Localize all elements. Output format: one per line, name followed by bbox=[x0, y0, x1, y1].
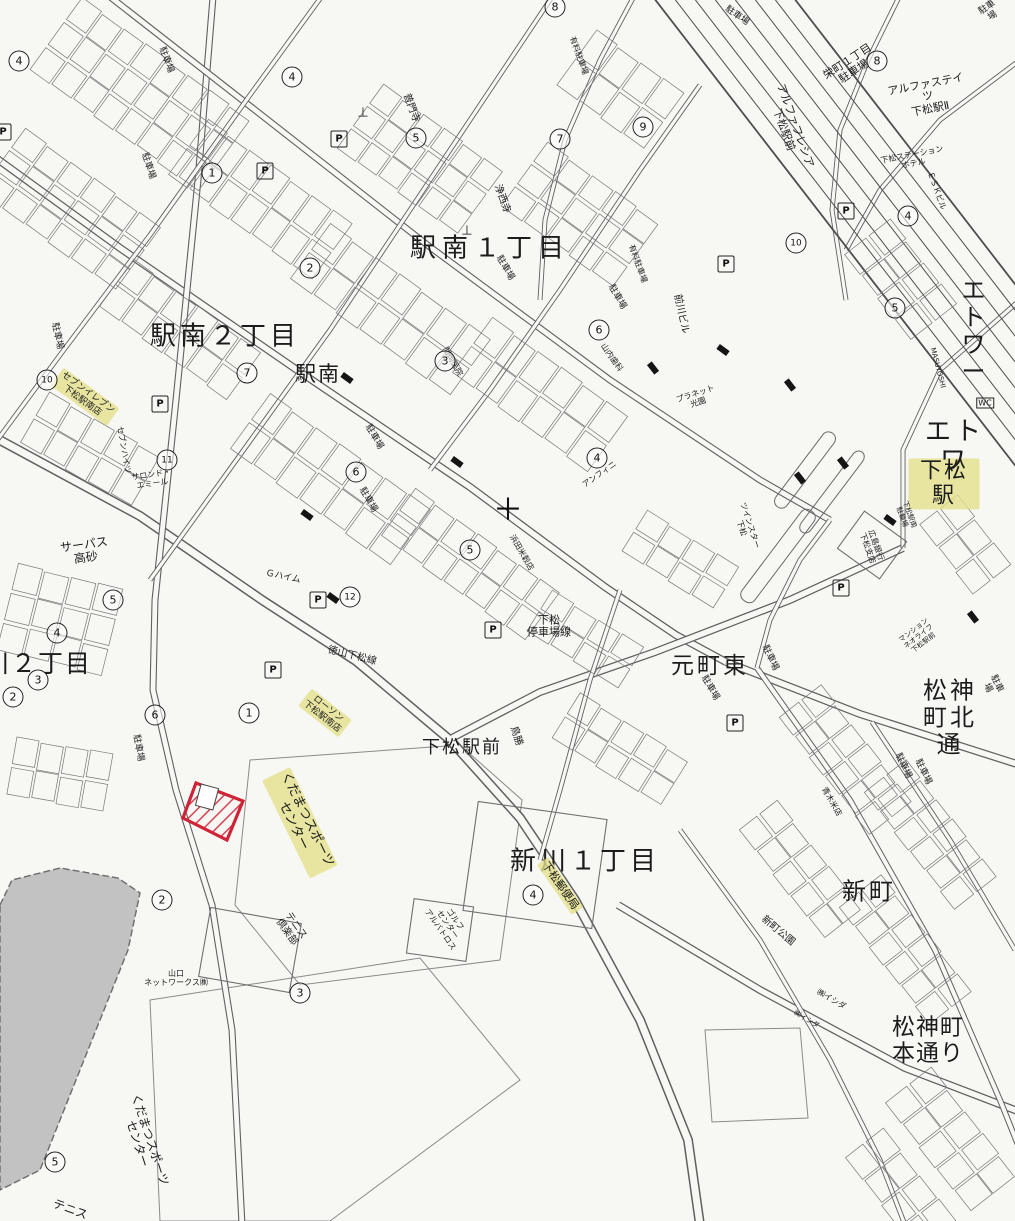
torikatsu: 鳥勝 bbox=[508, 725, 525, 747]
station-south-bicycle-parking: 下松駅南 駐輪場 bbox=[893, 500, 917, 532]
road-teishajo-line: 下松 停車場線 bbox=[527, 615, 571, 640]
circled-number-marker: 4 bbox=[9, 51, 30, 72]
circled-number-marker: 2 bbox=[300, 258, 321, 279]
parking-area-label: 駐車場 bbox=[49, 322, 64, 351]
parking-area-label: 駐車場 bbox=[723, 4, 751, 28]
g-heim: Ｇハイム bbox=[265, 568, 302, 585]
map-canvas: 駅南１丁目駅南２丁目駅南下松駅エトワーエトワ元町東松神町北通新川１丁目新町松神町… bbox=[0, 0, 1015, 1221]
kudamatsu-station-hotel: 下松ステーション ホテル bbox=[880, 145, 946, 175]
road-tokuyama-kudamatsu-line: 徳山下松線 bbox=[326, 645, 377, 668]
parking-symbol: P bbox=[310, 592, 327, 609]
planet-koen: プラネット 光園 bbox=[675, 384, 719, 413]
circled-number-marker: 4 bbox=[47, 623, 68, 644]
circled-number-marker: 6 bbox=[145, 705, 166, 726]
circled-number-marker: 4 bbox=[523, 885, 544, 906]
parking-area-label: 駐車場 bbox=[699, 674, 721, 702]
tennis: テニス bbox=[51, 1198, 89, 1221]
area-ekiminami-2chome: 駅南２丁目 bbox=[150, 322, 300, 351]
parking-symbol: P bbox=[833, 580, 850, 597]
circled-number-marker: 7 bbox=[237, 363, 258, 384]
circled-number-marker: 5 bbox=[885, 298, 906, 319]
area-kudamatsu-ekimae: 下松駅前 bbox=[422, 738, 502, 758]
parking-area-label: 駐車場 bbox=[978, 671, 1006, 700]
map-labels-layer: 駅南１丁目駅南２丁目駅南下松駅エトワーエトワ元町東松神町北通新川１丁目新町松神町… bbox=[0, 0, 1015, 1221]
parking-symbol: P bbox=[331, 131, 348, 148]
circled-number-marker: 3 bbox=[435, 351, 456, 372]
circled-number-marker: 7 bbox=[550, 129, 571, 150]
area-ekiminami: 駅南 bbox=[295, 363, 341, 387]
hiroshima-bank-kudamatsu: 広島銀行 下松支店 bbox=[857, 529, 885, 565]
parking-area-label: 駐車場 bbox=[494, 254, 516, 282]
twin-star-kudamatsu: ツインスター 下松 bbox=[729, 501, 761, 552]
circled-number-marker: 11 bbox=[157, 450, 178, 471]
ishida-co-1: ㈱イシダ bbox=[815, 988, 847, 1012]
seven-heights: セブンハイツ bbox=[114, 426, 131, 475]
parking-area-label: 駐車場 bbox=[760, 644, 781, 673]
joseiji-temple: 浄西寺 bbox=[492, 183, 513, 215]
surpass-takasago: サーパス 高砂 bbox=[59, 535, 110, 568]
masuyoshi: MASUYOSHI bbox=[928, 347, 946, 389]
area-matsukamicho-hondori: 松神町本通り bbox=[885, 1015, 972, 1067]
ishida-co-2: ㈱イシダ bbox=[792, 1010, 820, 1031]
parking-symbol: P bbox=[152, 396, 169, 413]
parking-area-label: 駐車場 bbox=[131, 734, 146, 762]
lawson-kudamatsu-ekinan: ローソン 下松駅南店 bbox=[298, 689, 352, 738]
kudamatsu-post-office: 下松郵便局 bbox=[537, 857, 584, 915]
circled-number-marker: 8 bbox=[867, 51, 888, 72]
paid-parking-2: 有料駐車場 bbox=[567, 36, 589, 77]
parking-symbol: P bbox=[718, 256, 735, 273]
circled-number-marker: 4 bbox=[587, 448, 608, 469]
circled-number-marker: 12 bbox=[340, 587, 361, 608]
circled-number-marker: 8 bbox=[545, 0, 566, 18]
circled-number-marker: 3 bbox=[290, 983, 311, 1004]
alpha-states-kudamatsu-2: アルファステイツ 下松駅Ⅱ bbox=[882, 71, 974, 124]
parking-symbol: P bbox=[485, 622, 502, 639]
salon-de-emile: サロンド・ エミール bbox=[131, 468, 173, 491]
shinmachi-park: 新町公園 bbox=[759, 914, 797, 948]
circled-number-marker: 2 bbox=[3, 687, 24, 708]
alpha-frecia-ekimae: アルファフレシア 下松駅前 bbox=[762, 82, 815, 173]
maekawa-building: 前川ビル bbox=[671, 293, 690, 334]
parking-area-label: 駐車場 bbox=[606, 283, 628, 311]
circled-number-marker: 5 bbox=[103, 590, 124, 611]
circled-number-marker: 3 bbox=[28, 670, 49, 691]
area-ekiminami-1chome: 駅南１丁目 bbox=[410, 234, 570, 263]
wc-mark: WC bbox=[976, 398, 994, 409]
seven-eleven-kudamatsu-ekinan: セブンイレブン 下松駅南店 bbox=[51, 368, 120, 426]
circled-number-marker: 1 bbox=[202, 163, 223, 184]
area-shinkawa-1chome: 新川１丁目 bbox=[510, 847, 660, 876]
cemetery-mark: ⊥ bbox=[357, 106, 368, 121]
sports-center-upper: くだまつスポーツ センター bbox=[262, 767, 338, 879]
station-kudamatsu: 下松駅 bbox=[909, 458, 980, 509]
circled-number-marker: 2 bbox=[152, 890, 173, 911]
mansion-neo-life: マンション ネオライフ 下松駅前 bbox=[898, 617, 940, 657]
hamada-rice: 浜田米穀店 bbox=[507, 533, 535, 572]
circled-number-marker: 5 bbox=[406, 128, 427, 149]
circled-number-marker: 4 bbox=[282, 67, 303, 88]
circled-number-marker: 5 bbox=[45, 1152, 66, 1173]
area-shinmachi: 新町 bbox=[842, 879, 896, 906]
tennis-club: テニス 倶楽部 bbox=[273, 910, 309, 947]
parking-area-label: 駐車場 bbox=[363, 423, 385, 451]
circled-number-marker: 9 bbox=[633, 117, 654, 138]
fumonji-temple: 普門寺 bbox=[401, 92, 422, 124]
paid-parking-1: 有料駐車場 bbox=[626, 244, 648, 285]
parking-symbol: P bbox=[257, 163, 274, 180]
yamauchi-dental: 山内歯科 bbox=[598, 342, 624, 373]
parking-symbol: P bbox=[0, 124, 12, 141]
parking-symbol: P bbox=[838, 203, 855, 220]
circled-number-marker: 6 bbox=[346, 462, 367, 483]
parking-area-label: 駐車場 bbox=[157, 46, 176, 75]
esk-building: ＥＳＫビル bbox=[925, 171, 947, 212]
circled-number-marker: 4 bbox=[898, 206, 919, 227]
parking-area-label: 駐車場 bbox=[893, 752, 914, 781]
yamaguchi-networks: 山口 ネットワークス㈱ bbox=[144, 970, 208, 988]
circled-number-marker: 10 bbox=[786, 233, 807, 254]
circled-number-marker: 6 bbox=[589, 320, 610, 341]
parking-area-label: 駐車場 bbox=[139, 152, 157, 181]
circled-number-marker: 1 bbox=[239, 703, 260, 724]
circled-number-marker: 10 bbox=[37, 370, 58, 391]
parking-area-label: 駐車場 bbox=[357, 486, 379, 514]
golf-center-albatross: ゴルフ センター アルバトロス bbox=[422, 898, 472, 953]
parking-symbol: P bbox=[265, 662, 282, 679]
parking-area-label: 駐車場 bbox=[913, 758, 934, 787]
cemetery-mark: ⊥ bbox=[461, 224, 472, 239]
parking-symbol: P bbox=[727, 715, 744, 732]
circled-number-marker: 5 bbox=[460, 540, 481, 561]
area-motomachi-higashi: 元町東 bbox=[671, 654, 749, 680]
sports-center-lower: くだまつスポーツ センター bbox=[115, 1092, 170, 1191]
area-matsukamicho-kitadori: 松神町北通 bbox=[918, 678, 983, 759]
parking-area-label: 駐車場 bbox=[974, 0, 1006, 27]
aoki-rice-store: 青木米店 bbox=[819, 786, 843, 818]
intersection-cross-mark: ＋ bbox=[493, 485, 523, 529]
area-etoile-lower: エトワ bbox=[925, 418, 985, 476]
area-etoile-upper: エトワー bbox=[955, 277, 995, 385]
